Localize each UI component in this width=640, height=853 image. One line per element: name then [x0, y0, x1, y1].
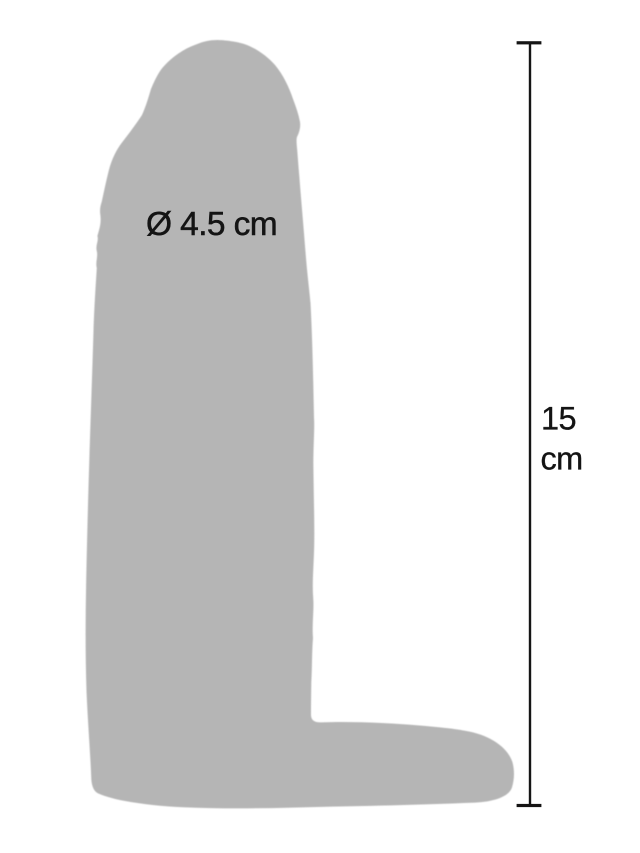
- svg-text:Ø 4.5 cm: Ø 4.5 cm: [146, 206, 277, 243]
- svg-text:cm: cm: [541, 440, 583, 476]
- svg-text:15: 15: [541, 401, 576, 437]
